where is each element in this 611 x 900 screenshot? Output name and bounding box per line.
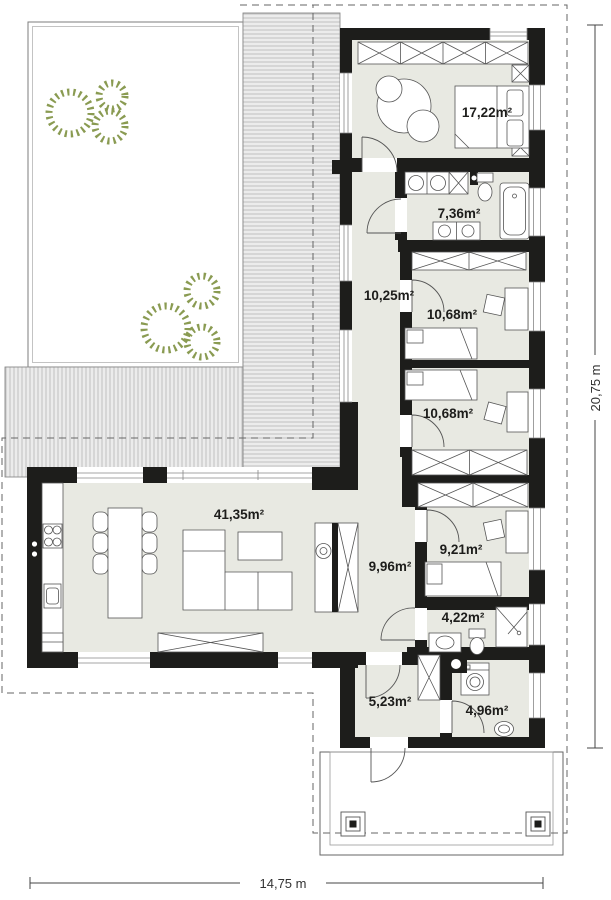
label-bedroom-2: 10,68m²	[427, 307, 478, 322]
label-bathroom-main: 7,36m²	[438, 206, 481, 221]
label-utility-room: 4,96m²	[466, 703, 509, 718]
dimension-depth-label: 20,75 m	[588, 365, 603, 412]
tv-unit-icon	[315, 523, 358, 612]
label-bedroom-3: 10,68m²	[423, 406, 474, 421]
terrace-strip-west	[243, 13, 340, 477]
label-bathroom-2: 4,22m²	[442, 610, 485, 625]
label-bedroom-4: 9,21m²	[440, 542, 483, 557]
kitchen-counter	[42, 483, 63, 652]
entrance-porch	[320, 752, 563, 855]
label-living-room: 41,35m²	[214, 507, 265, 522]
dimension-width-label: 14,75 m	[260, 876, 307, 891]
garden-lawn	[28, 22, 243, 367]
label-bedroom-main: 17,22m²	[462, 105, 513, 120]
terrace-strip-south	[5, 367, 243, 477]
coffee-table-icon	[238, 532, 282, 560]
floor-plan: 17,22m² 7,36m² 10,25m² 10,68m² 10,68m² 4…	[0, 0, 611, 900]
label-hallway-upper: 10,25m²	[364, 288, 415, 303]
label-hallway-lower: 9,96m²	[369, 559, 412, 574]
label-entry-hall: 5,23m²	[369, 694, 412, 709]
